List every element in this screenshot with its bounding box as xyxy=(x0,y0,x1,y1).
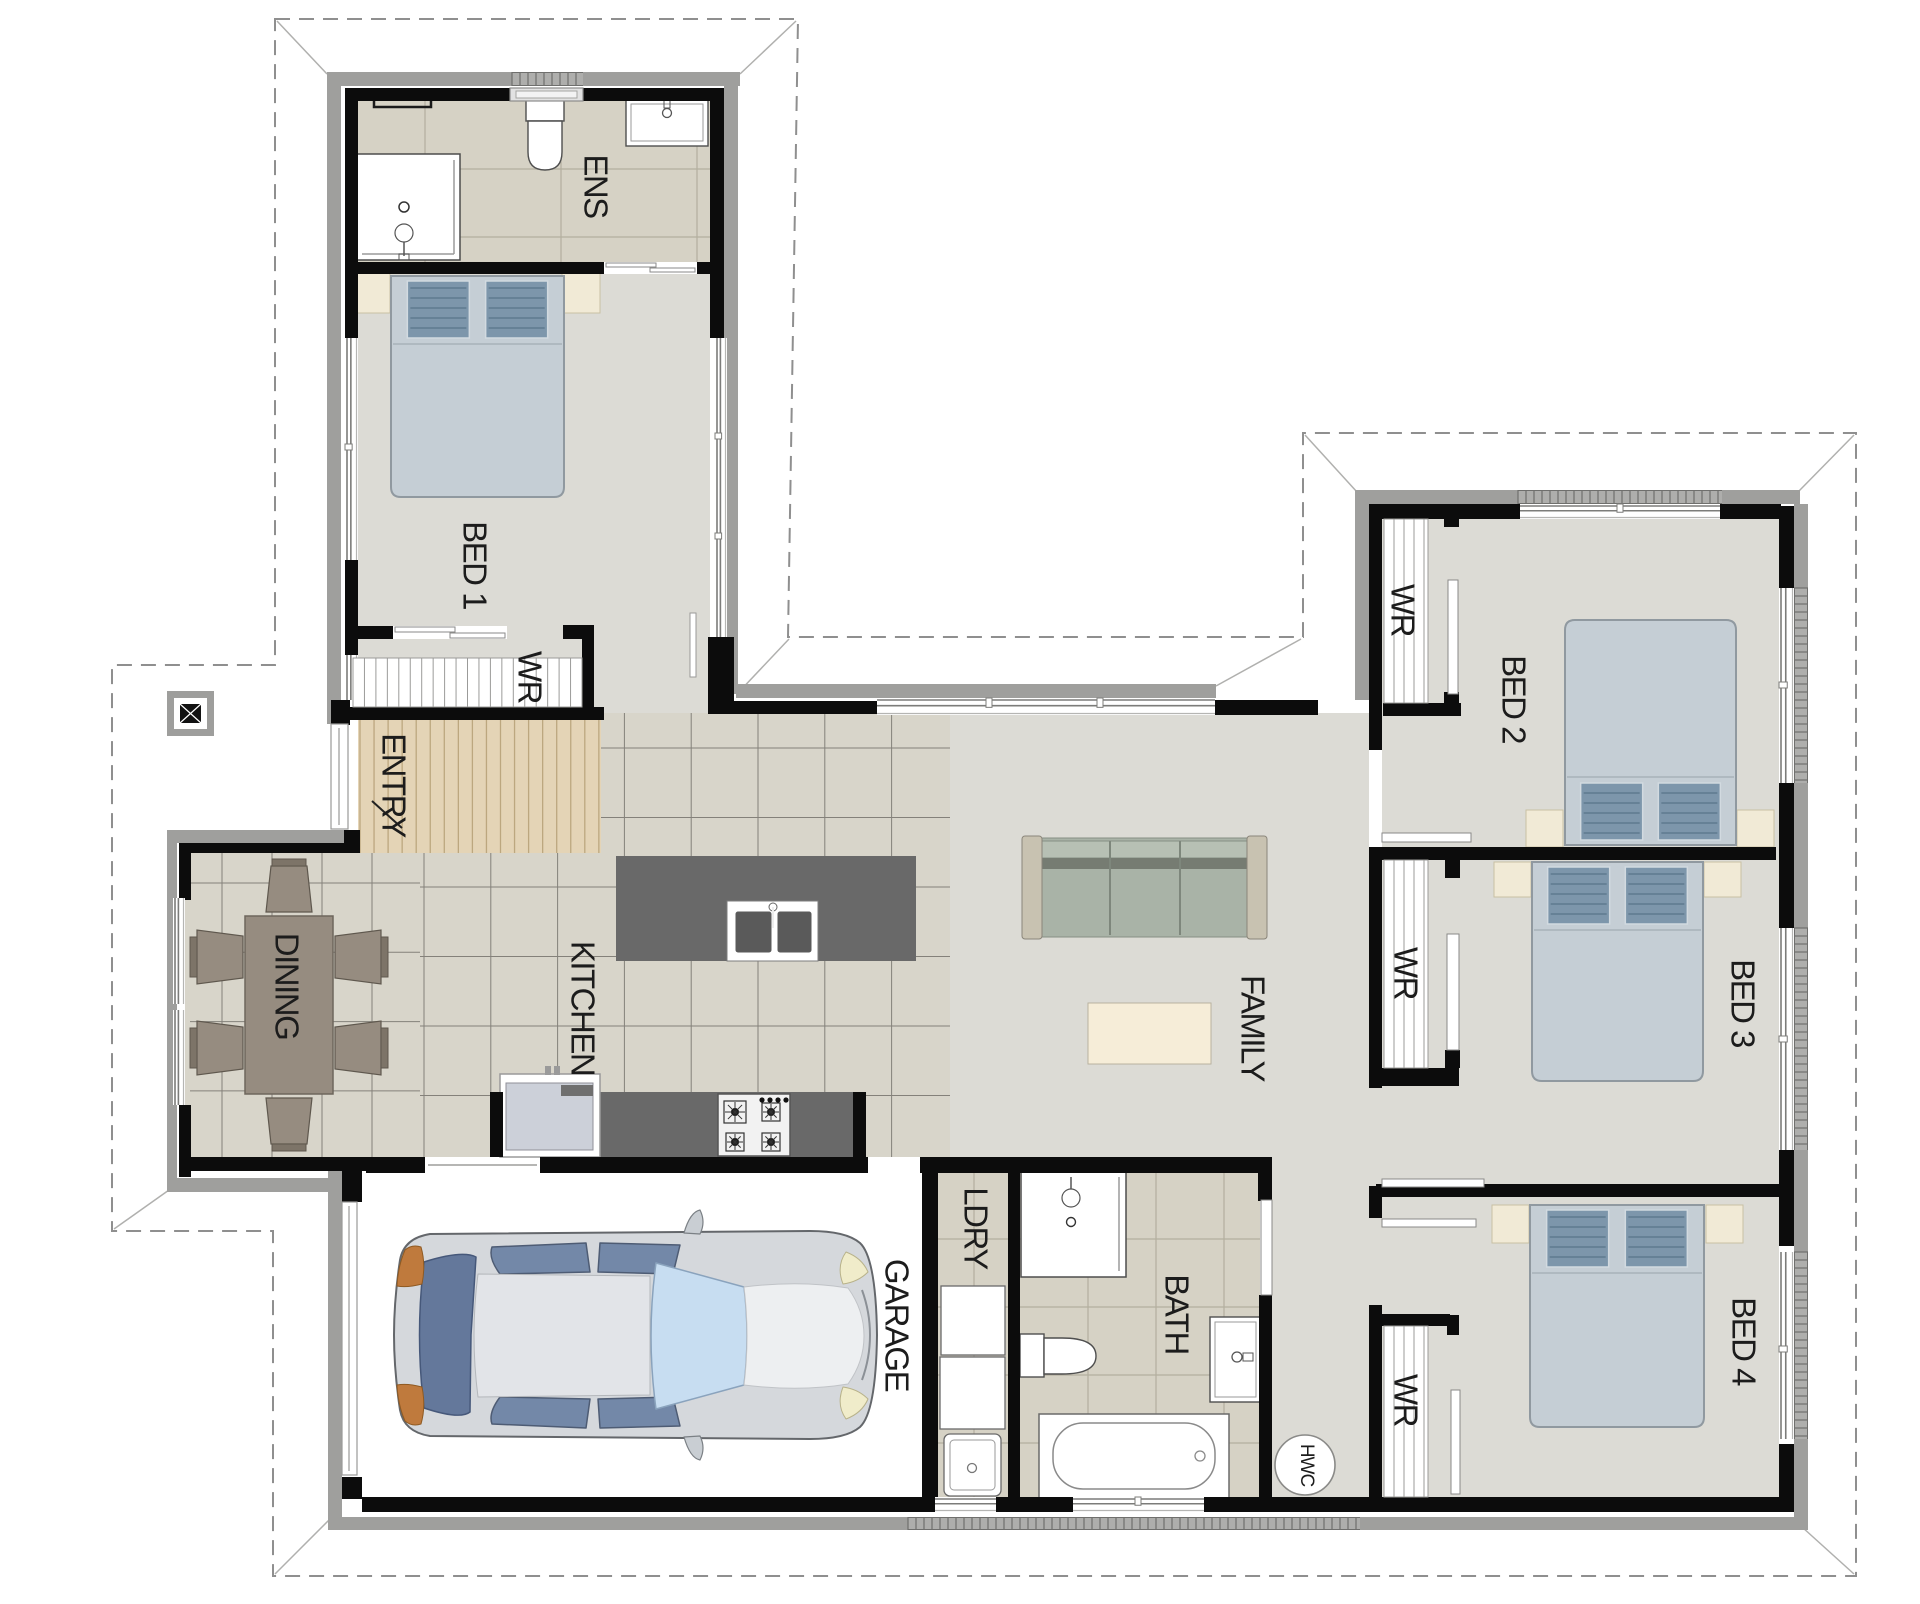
svg-text:HWC: HWC xyxy=(1296,1444,1317,1487)
svg-text:BED 4: BED 4 xyxy=(1725,1297,1762,1386)
svg-text:KITCHEN: KITCHEN xyxy=(564,941,601,1075)
svg-text:BATH: BATH xyxy=(1158,1274,1195,1354)
svg-text:WR: WR xyxy=(1384,584,1421,637)
svg-text:DINING: DINING xyxy=(268,933,305,1040)
svg-text:ENS: ENS xyxy=(577,154,614,218)
svg-text:WR: WR xyxy=(1387,947,1424,1000)
svg-text:BED 2: BED 2 xyxy=(1495,655,1532,743)
svg-text:WR: WR xyxy=(1387,1374,1424,1427)
svg-text:BED 1: BED 1 xyxy=(456,521,493,609)
svg-text:BED 3: BED 3 xyxy=(1724,959,1761,1047)
svg-text:LDRY: LDRY xyxy=(957,1187,994,1270)
svg-text:FAMILY: FAMILY xyxy=(1234,975,1271,1082)
svg-text:GARAGE: GARAGE xyxy=(878,1259,915,1392)
svg-text:WR: WR xyxy=(511,651,548,704)
svg-text:ENTRY: ENTRY xyxy=(375,733,412,838)
